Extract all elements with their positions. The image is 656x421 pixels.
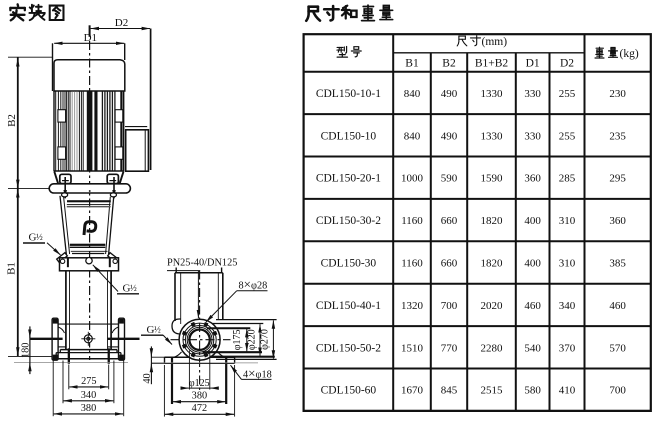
svg-text:1670: 1670 xyxy=(401,385,424,397)
svg-text:460: 460 xyxy=(524,300,541,312)
svg-text:(kg): (kg) xyxy=(620,48,639,60)
svg-text:2515: 2515 xyxy=(481,385,504,397)
svg-text:275: 275 xyxy=(81,376,96,387)
svg-text:330: 330 xyxy=(524,88,541,100)
svg-text:B1: B1 xyxy=(405,57,419,69)
svg-text:380: 380 xyxy=(192,390,207,401)
svg-text:460: 460 xyxy=(609,300,626,312)
svg-text:360: 360 xyxy=(524,173,541,185)
svg-text:1330: 1330 xyxy=(481,88,504,100)
svg-text:310: 310 xyxy=(559,215,576,227)
svg-text:φ175: φ175 xyxy=(232,330,243,351)
svg-text:CDL150-10: CDL150-10 xyxy=(321,130,377,142)
svg-text:CDL150-60: CDL150-60 xyxy=(321,385,377,397)
svg-text:340: 340 xyxy=(81,390,96,401)
svg-text:1590: 1590 xyxy=(481,173,504,185)
svg-text:295: 295 xyxy=(609,173,626,185)
svg-text:½: ½ xyxy=(36,232,43,242)
svg-text:570: 570 xyxy=(609,342,626,354)
svg-text:1320: 1320 xyxy=(401,300,424,312)
svg-text:B1: B1 xyxy=(6,262,18,275)
svg-text:CDL150-40-1: CDL150-40-1 xyxy=(316,300,381,312)
svg-text:CDL150-10-1: CDL150-10-1 xyxy=(316,88,381,100)
svg-text:845: 845 xyxy=(441,385,458,397)
svg-text:φ270: φ270 xyxy=(260,329,271,350)
svg-text:700: 700 xyxy=(609,385,626,397)
svg-text:330: 330 xyxy=(524,130,541,142)
svg-text:1510: 1510 xyxy=(401,342,424,354)
svg-text:½: ½ xyxy=(130,283,137,293)
svg-text:360: 360 xyxy=(609,215,626,227)
svg-text:490: 490 xyxy=(441,88,458,100)
svg-text:700: 700 xyxy=(441,300,458,312)
svg-text:770: 770 xyxy=(441,342,458,354)
svg-text:1330: 1330 xyxy=(481,130,504,142)
svg-text:230: 230 xyxy=(609,88,626,100)
svg-text:660: 660 xyxy=(441,258,458,270)
svg-text:255: 255 xyxy=(559,88,576,100)
svg-text:2020: 2020 xyxy=(481,300,504,312)
svg-text:B1+B2: B1+B2 xyxy=(475,57,509,69)
svg-text:340: 340 xyxy=(559,300,576,312)
svg-text:1160: 1160 xyxy=(401,258,423,270)
svg-text:B2: B2 xyxy=(6,114,18,127)
svg-text:370: 370 xyxy=(559,342,576,354)
svg-text:580: 580 xyxy=(524,385,541,397)
svg-text:180: 180 xyxy=(21,343,32,358)
svg-text:255: 255 xyxy=(559,130,576,142)
svg-text:(mm): (mm) xyxy=(482,36,508,48)
svg-text:PN25-40/DN125: PN25-40/DN125 xyxy=(167,257,237,268)
svg-text:½: ½ xyxy=(154,324,161,334)
svg-text:1160: 1160 xyxy=(401,215,423,227)
svg-text:D2: D2 xyxy=(560,57,574,69)
svg-text:40: 40 xyxy=(142,373,153,383)
svg-text:φ125: φ125 xyxy=(189,378,210,389)
svg-text:2280: 2280 xyxy=(481,342,504,354)
svg-text:490: 490 xyxy=(441,130,458,142)
svg-text:660: 660 xyxy=(441,215,458,227)
svg-text:310: 310 xyxy=(559,258,576,270)
svg-text:CDL150-20-1: CDL150-20-1 xyxy=(316,173,381,185)
svg-text:540: 540 xyxy=(524,342,541,354)
svg-text:CDL150-30-2: CDL150-30-2 xyxy=(316,215,381,227)
svg-text:410: 410 xyxy=(559,385,576,397)
svg-text:840: 840 xyxy=(404,130,421,142)
svg-text:D2: D2 xyxy=(115,17,128,29)
svg-text:CDL150-30: CDL150-30 xyxy=(321,258,377,270)
svg-text:385: 385 xyxy=(609,258,626,270)
svg-text:380: 380 xyxy=(81,403,96,414)
svg-text:1000: 1000 xyxy=(401,173,424,185)
svg-text:840: 840 xyxy=(404,88,421,100)
svg-text:φ220: φ220 xyxy=(247,329,258,350)
svg-text:400: 400 xyxy=(524,215,541,227)
svg-text:1820: 1820 xyxy=(481,215,504,227)
svg-text:472: 472 xyxy=(192,403,207,414)
svg-text:D1: D1 xyxy=(526,57,540,69)
svg-text:CDL150-50-2: CDL150-50-2 xyxy=(316,342,381,354)
svg-text:285: 285 xyxy=(559,173,576,185)
svg-text:235: 235 xyxy=(609,130,626,142)
svg-text:D1: D1 xyxy=(84,32,97,44)
svg-text:590: 590 xyxy=(441,173,458,185)
svg-text:B2: B2 xyxy=(442,57,456,69)
svg-text:400: 400 xyxy=(524,258,541,270)
svg-text:1820: 1820 xyxy=(481,258,504,270)
